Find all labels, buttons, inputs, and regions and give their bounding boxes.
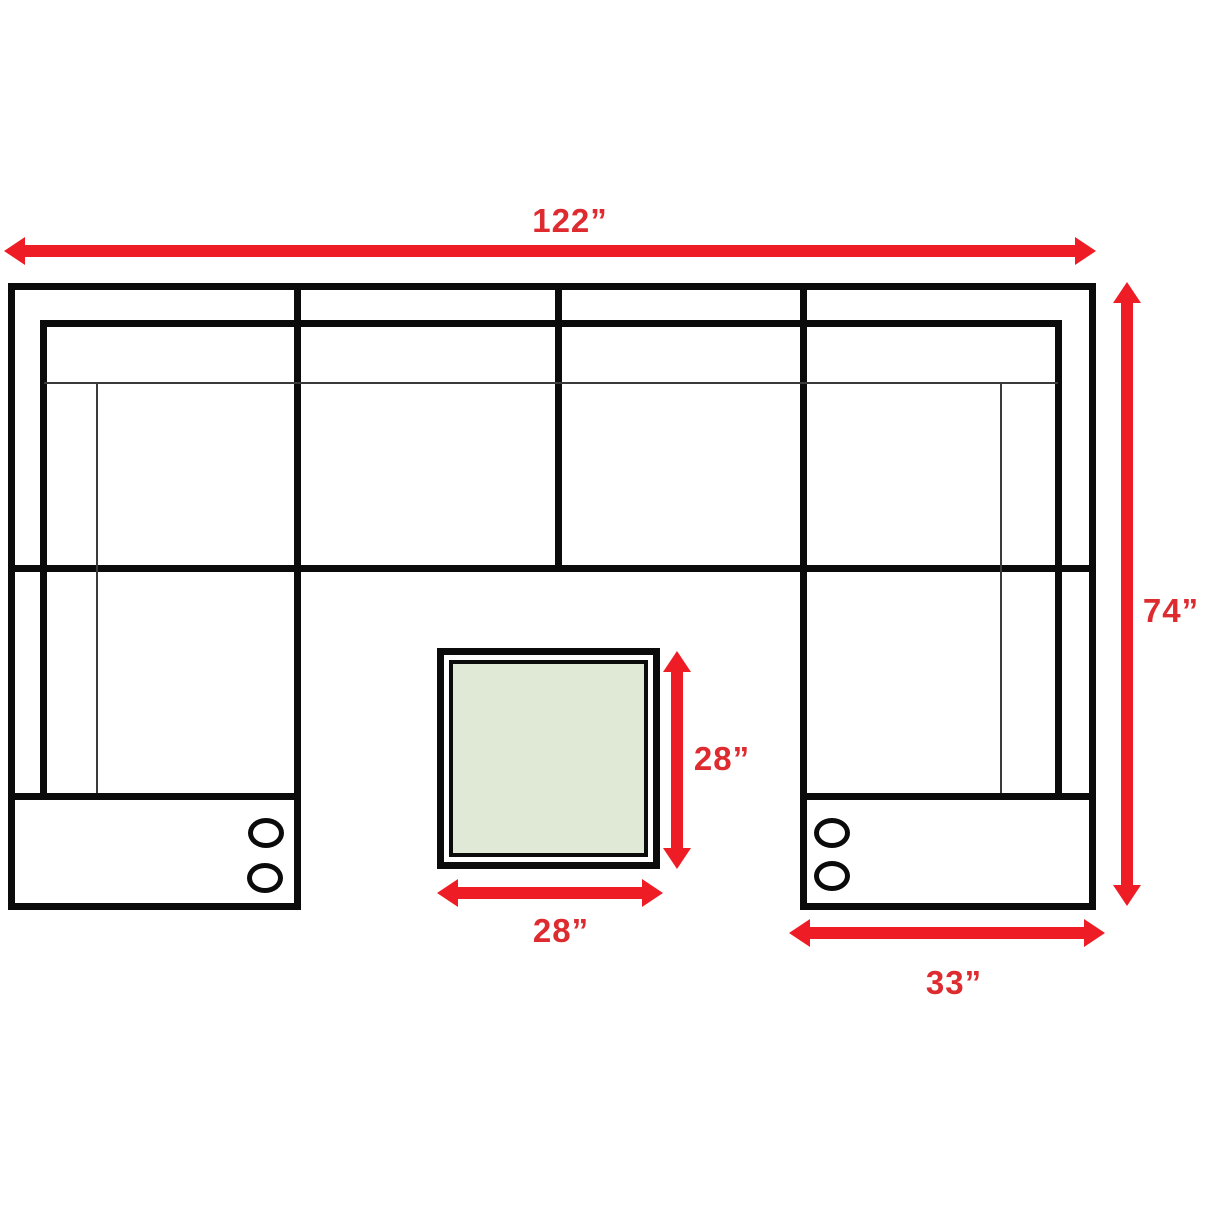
left-console-top-edge xyxy=(8,793,301,800)
sofa-outer-top-edge xyxy=(8,283,1096,290)
left-console-bottom-edge xyxy=(8,903,301,910)
dimension-label-overall-depth: 74” xyxy=(1143,592,1199,630)
right-console-top-edge xyxy=(800,793,1096,800)
cupholder-icon xyxy=(814,861,850,891)
dimension-label-ottoman-depth: 28” xyxy=(694,740,750,778)
cushion-line-right xyxy=(1000,382,1002,800)
dimension-arrow-overall-width xyxy=(4,237,1096,265)
cupholder-icon xyxy=(248,818,284,848)
arrowhead-right-icon xyxy=(642,879,663,907)
sofa-left-arm-outer-edge xyxy=(8,283,15,910)
sectional-dimension-diagram: 122” 74” 28” 28” 33” xyxy=(0,0,1214,1214)
arrowhead-right-icon xyxy=(1075,237,1096,265)
cushion-line-back xyxy=(44,382,1058,384)
dimension-label-ottoman-width: 28” xyxy=(533,912,589,950)
backrest-inner-top-edge xyxy=(40,320,1062,327)
dimension-arrow-ottoman-width xyxy=(437,879,663,907)
right-console-bottom-edge xyxy=(800,903,1096,910)
dimension-label-console-width: 33” xyxy=(926,964,982,1002)
cupholder-icon xyxy=(247,863,283,893)
arrowhead-down-icon xyxy=(1113,885,1141,906)
ottoman-cushion xyxy=(449,660,648,857)
right-chaise-inner-edge xyxy=(800,283,807,910)
seat-front-edge xyxy=(8,565,1096,572)
dimension-arrow-ottoman-depth xyxy=(663,651,691,869)
ottoman xyxy=(437,648,660,869)
cushion-line-left xyxy=(96,382,98,800)
dimension-arrow-overall-depth xyxy=(1113,282,1141,906)
cupholder-icon xyxy=(814,818,850,848)
backrest-inner-right-edge xyxy=(1055,320,1062,800)
dimension-label-overall-width: 122” xyxy=(532,202,608,240)
dimension-arrow-console-width xyxy=(789,919,1105,947)
backrest-inner-left-edge xyxy=(40,320,47,800)
arrowhead-right-icon xyxy=(1084,919,1105,947)
sofa-right-arm-outer-edge xyxy=(1089,283,1096,910)
arrowhead-down-icon xyxy=(663,848,691,869)
left-chaise-inner-edge xyxy=(294,283,301,910)
